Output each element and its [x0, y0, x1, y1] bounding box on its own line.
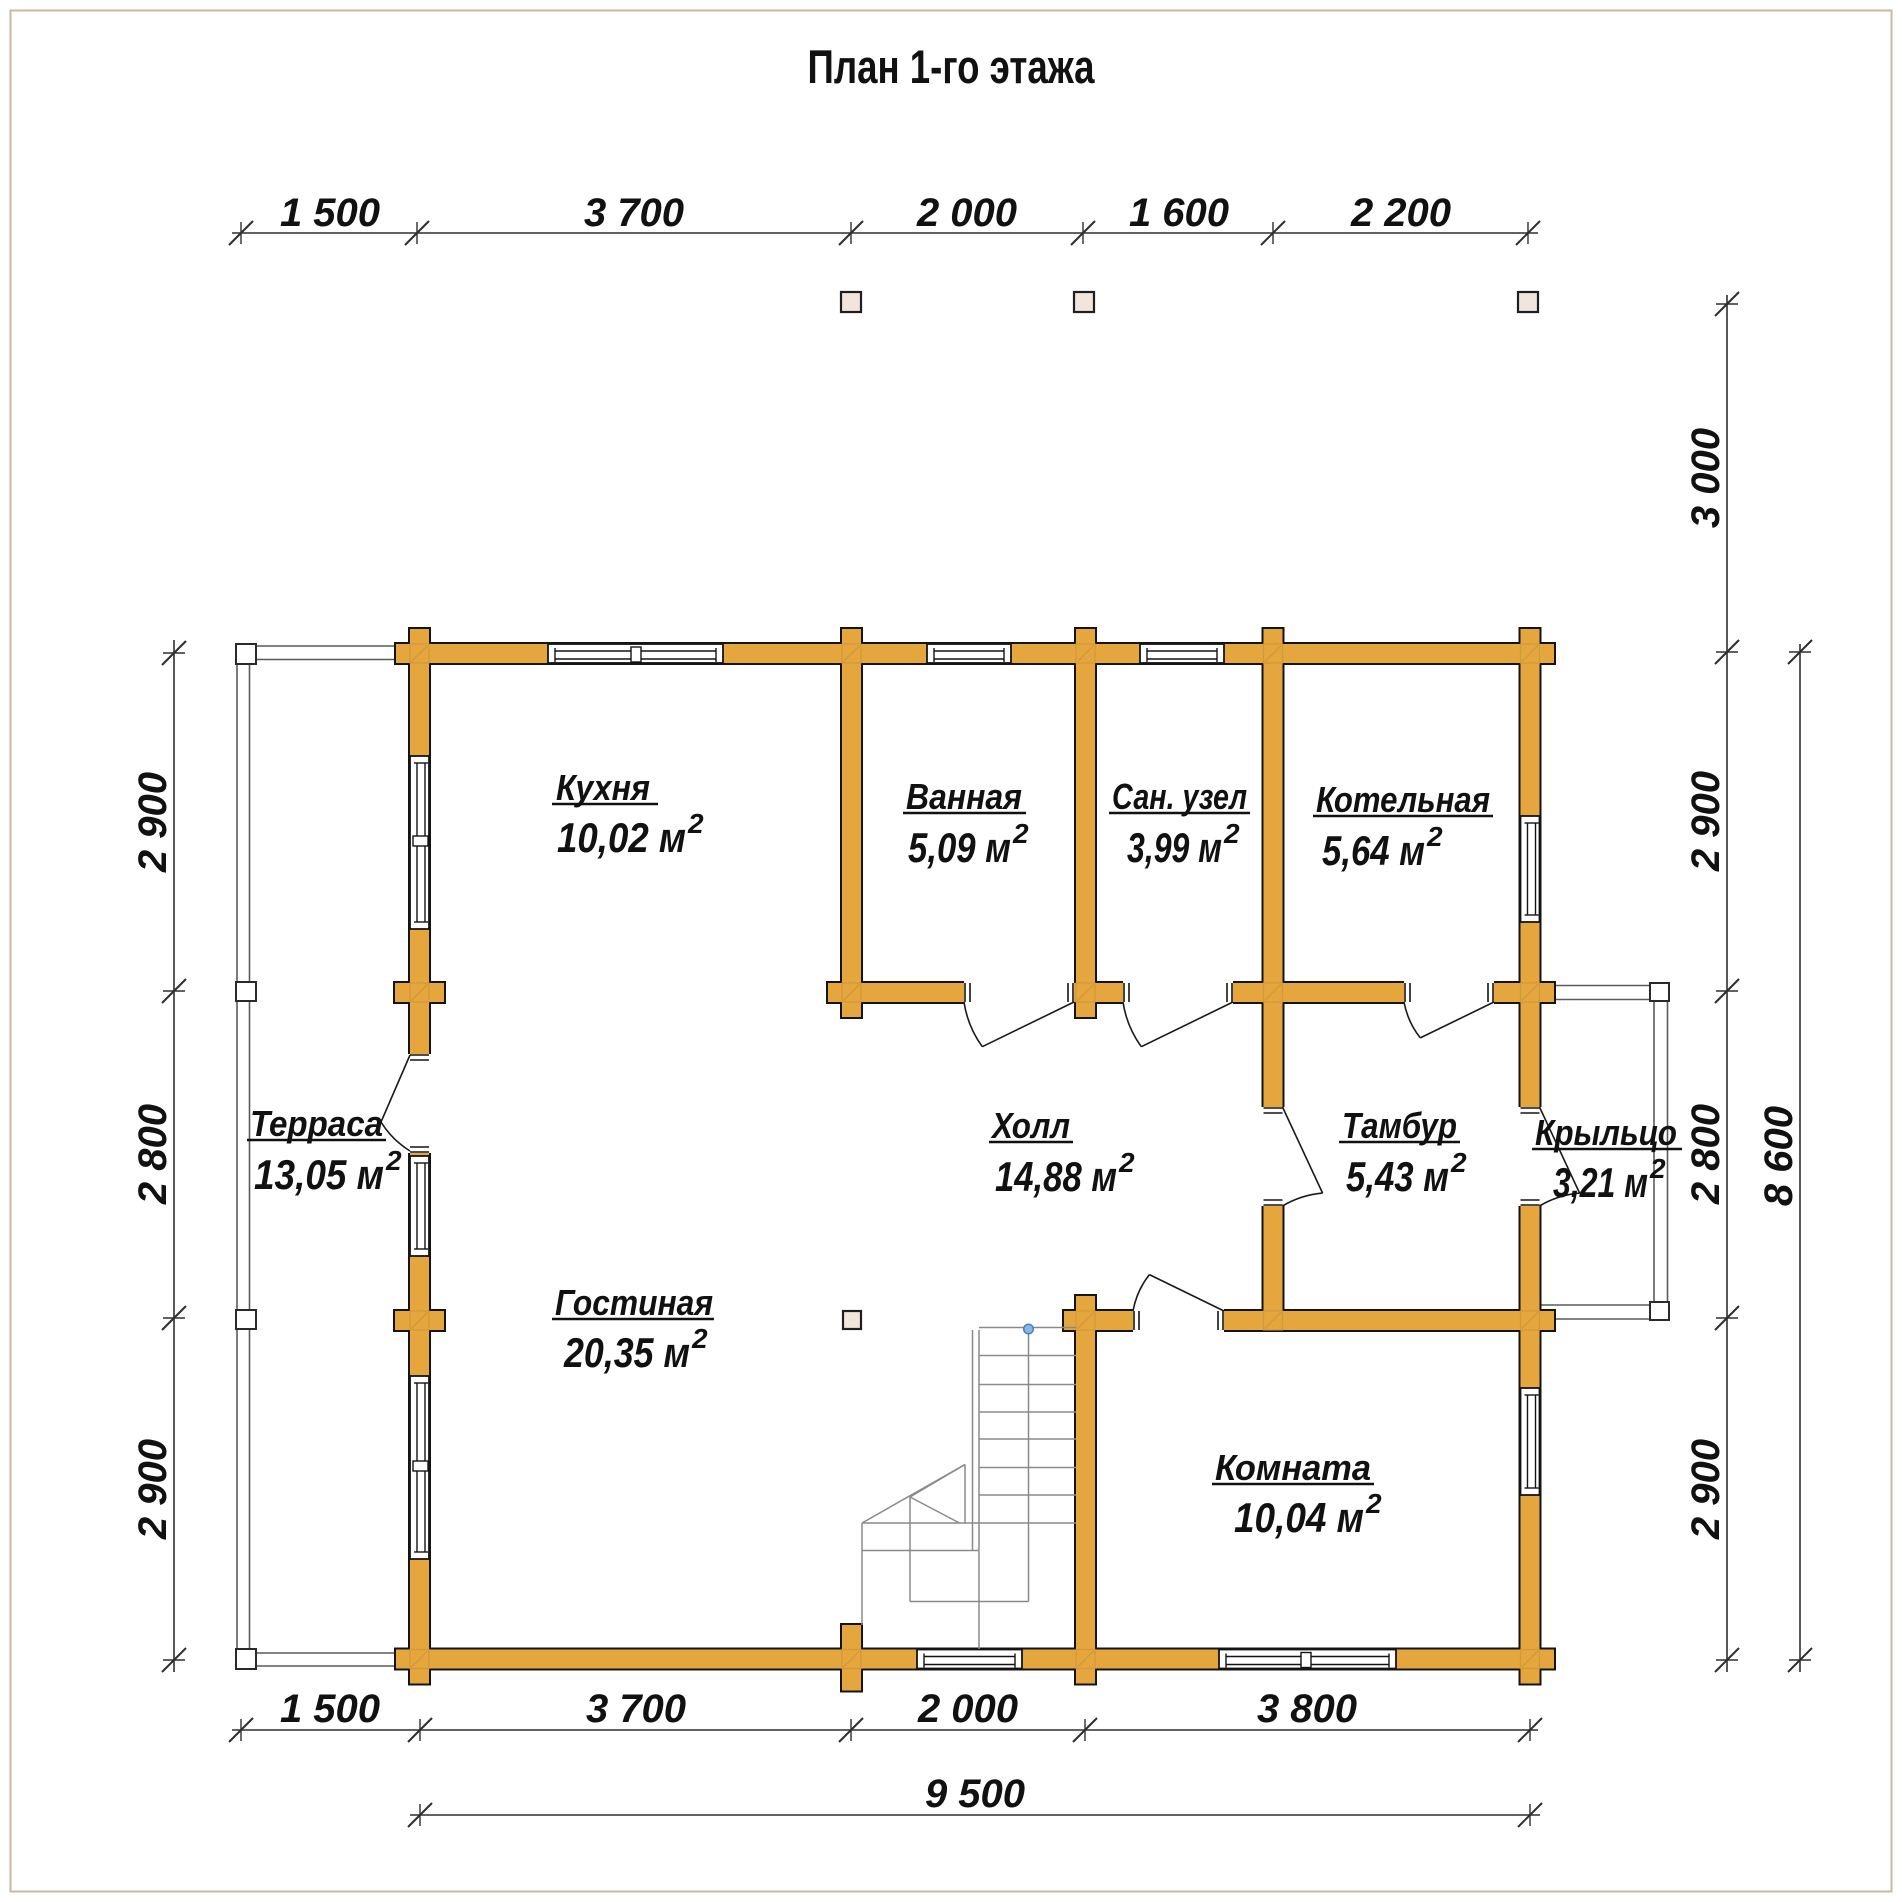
svg-text:2 900: 2 900	[131, 1439, 175, 1540]
svg-text:2 900: 2 900	[1684, 771, 1728, 872]
svg-text:2: 2	[691, 1323, 708, 1354]
svg-text:2 000: 2 000	[917, 1687, 1018, 1731]
svg-text:2 900: 2 900	[131, 772, 175, 873]
svg-text:3 700: 3 700	[584, 191, 684, 235]
svg-text:9 500: 9 500	[925, 1772, 1025, 1816]
svg-text:10,02 м: 10,02 м	[557, 814, 686, 861]
svg-text:2: 2	[1118, 1147, 1135, 1178]
svg-text:Ванная: Ванная	[906, 776, 1022, 817]
svg-text:2: 2	[1365, 1488, 1382, 1519]
svg-text:2: 2	[1649, 1153, 1666, 1184]
svg-text:Сан. узел: Сан. узел	[1112, 776, 1247, 817]
svg-text:2 800: 2 800	[1684, 1104, 1728, 1205]
svg-text:20,35 м: 20,35 м	[563, 1329, 690, 1376]
svg-text:13,05 м: 13,05 м	[254, 1151, 384, 1198]
svg-text:3,21 м: 3,21 м	[1553, 1159, 1648, 1206]
svg-text:3,99 м: 3,99 м	[1127, 824, 1222, 871]
svg-text:5,43 м: 5,43 м	[1346, 1153, 1449, 1200]
svg-text:1 500: 1 500	[280, 191, 380, 235]
svg-text:Крыльцо: Крыльцо	[1535, 1112, 1677, 1153]
svg-text:2: 2	[385, 1145, 402, 1176]
svg-text:2 000: 2 000	[916, 191, 1017, 235]
svg-text:Комната: Комната	[1215, 1447, 1371, 1488]
svg-text:Котельная: Котельная	[1316, 779, 1490, 820]
svg-text:Гостиная: Гостиная	[555, 1282, 713, 1323]
svg-text:2 200: 2 200	[1350, 191, 1451, 235]
svg-text:8 600: 8 600	[1757, 1106, 1801, 1206]
svg-text:Терраса: Терраса	[250, 1103, 383, 1144]
svg-text:3 700: 3 700	[586, 1687, 686, 1731]
svg-text:10,04 м: 10,04 м	[1234, 1494, 1364, 1541]
svg-text:3 800: 3 800	[1257, 1687, 1357, 1731]
svg-text:Кухня: Кухня	[556, 767, 650, 808]
svg-text:2: 2	[1426, 821, 1443, 852]
svg-text:Холл: Холл	[990, 1105, 1070, 1146]
svg-text:Тамбур: Тамбур	[1342, 1105, 1457, 1146]
svg-text:План 1-го этажа: План 1-го этажа	[808, 40, 1096, 93]
svg-text:2: 2	[687, 808, 704, 839]
svg-text:5,64 м: 5,64 м	[1322, 827, 1425, 874]
svg-text:3 000: 3 000	[1684, 428, 1728, 528]
svg-text:1 600: 1 600	[1129, 191, 1229, 235]
svg-text:2 800: 2 800	[131, 1104, 175, 1205]
svg-text:14,88 м: 14,88 м	[995, 1153, 1117, 1200]
svg-text:2: 2	[1012, 818, 1029, 849]
svg-text:2: 2	[1223, 818, 1240, 849]
svg-text:5,09 м: 5,09 м	[908, 824, 1011, 871]
svg-text:2: 2	[1450, 1147, 1467, 1178]
svg-text:2 900: 2 900	[1684, 1439, 1728, 1540]
svg-text:1 500: 1 500	[280, 1687, 380, 1731]
